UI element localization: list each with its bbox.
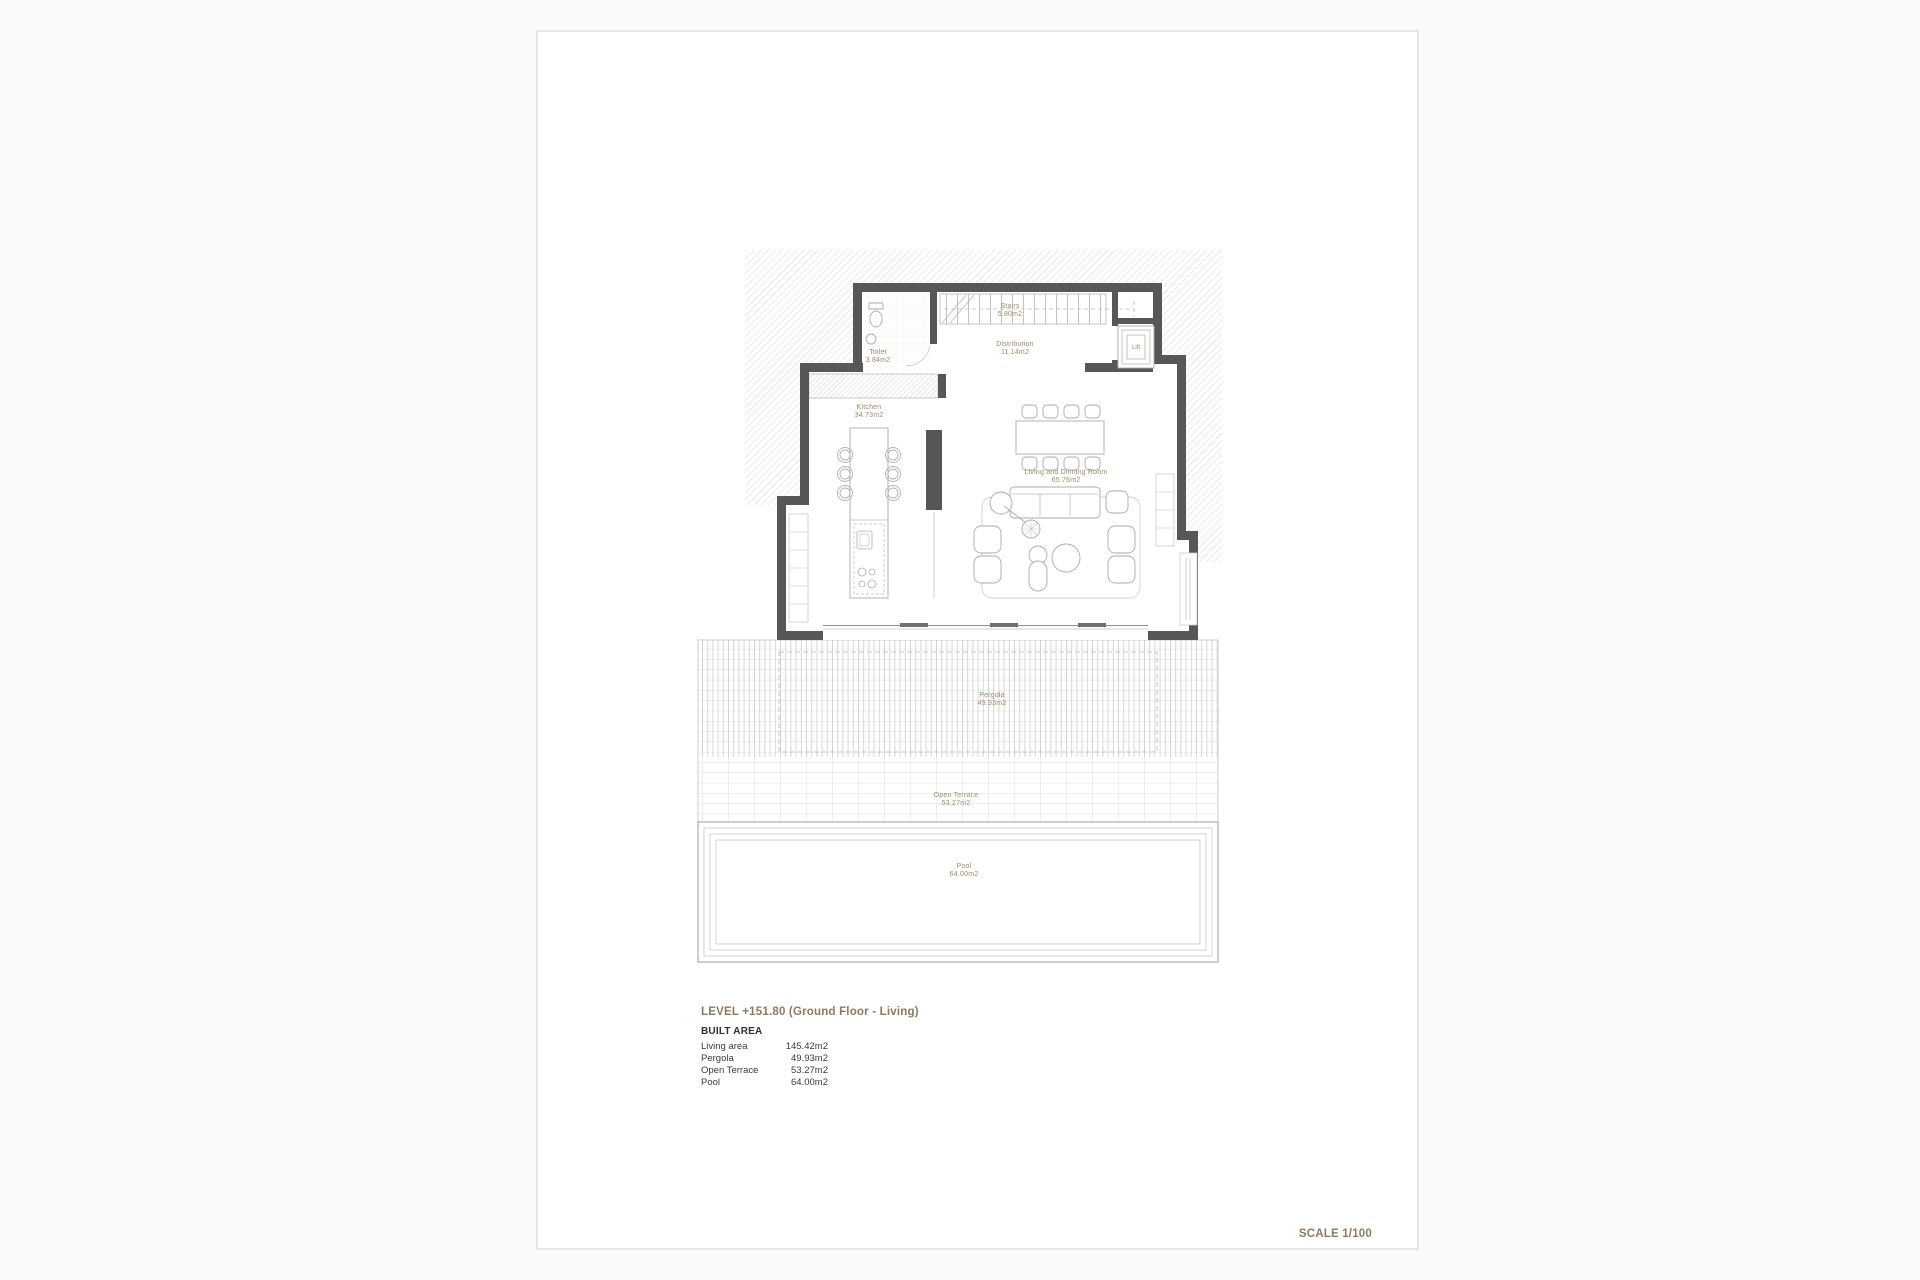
label-kitchen-area: 34.73m2 bbox=[855, 412, 884, 419]
wall-segment bbox=[1148, 631, 1198, 640]
wall-segment bbox=[1177, 355, 1186, 540]
label-toilet-name: Toilet bbox=[869, 349, 887, 356]
label-living-area: 65.76m2 bbox=[1052, 477, 1081, 484]
label-living-name: Living and Dinning Room bbox=[1025, 469, 1108, 476]
label-pool-name: Pool bbox=[957, 863, 972, 870]
built-area-row-label: Open Terrace bbox=[701, 1065, 758, 1076]
page-background: Toilet 3.84m2 Stairs 5.80m2 Distribution… bbox=[0, 0, 1920, 1280]
wall-segment bbox=[800, 363, 863, 372]
floor-lamp bbox=[990, 492, 1012, 514]
label-open-terrace-area: 53.27m2 bbox=[942, 800, 971, 807]
scale-label: SCALE 1/100 bbox=[1299, 1228, 1372, 1240]
wall-segment bbox=[930, 292, 937, 344]
floor-plan-drawing: Toilet 3.84m2 Stairs 5.80m2 Distribution… bbox=[0, 0, 1920, 1280]
partition-wall bbox=[926, 430, 942, 510]
window-niche-right-upper bbox=[1156, 474, 1174, 546]
built-area-row-value: 145.42m2 bbox=[786, 1041, 828, 1052]
wall-segment bbox=[800, 363, 809, 505]
label-stairs-name: Stairs bbox=[1000, 303, 1019, 310]
wall-segment bbox=[853, 283, 862, 363]
label-lift: Lift bbox=[1132, 345, 1140, 351]
label-pool-area: 64.00m2 bbox=[950, 871, 979, 878]
pergola-joists bbox=[698, 640, 1218, 757]
pool bbox=[698, 822, 1218, 962]
wall-segment bbox=[853, 283, 1162, 292]
built-area-row-value: 64.00m2 bbox=[791, 1077, 828, 1088]
wall-segment bbox=[938, 374, 946, 398]
label-toilet-area: 3.84m2 bbox=[866, 357, 891, 364]
built-area-row-value: 53.27m2 bbox=[791, 1065, 828, 1076]
label-open-terrace-name: Open Terrace bbox=[934, 792, 979, 799]
wall-segment bbox=[777, 496, 786, 640]
label-distribution-name: Distribution bbox=[996, 341, 1033, 348]
built-area-row-value: 49.93m2 bbox=[791, 1053, 828, 1064]
label-distribution-area: 11.14m2 bbox=[1001, 349, 1029, 356]
dining-table bbox=[1016, 421, 1104, 454]
label-stairs-area: 5.80m2 bbox=[998, 311, 1023, 318]
window-niche-left bbox=[789, 514, 808, 622]
wall-segment bbox=[777, 631, 823, 640]
label-pergola-area: 49.93m2 bbox=[978, 700, 1007, 707]
label-kitchen-name: Kitchen bbox=[857, 404, 882, 411]
built-area-heading: BUILT AREA bbox=[701, 1026, 762, 1037]
stairs bbox=[940, 294, 1134, 324]
built-area-row-label: Living area bbox=[701, 1041, 748, 1052]
kitchen-counter bbox=[809, 374, 938, 398]
wall-segment bbox=[1112, 318, 1153, 324]
sofa bbox=[1010, 487, 1100, 518]
round-side-table bbox=[1022, 520, 1040, 538]
window-niche-right-lower bbox=[1180, 553, 1197, 625]
side-table bbox=[1106, 491, 1128, 513]
kitchen-island bbox=[850, 428, 888, 598]
label-pergola-name: Pergola bbox=[979, 692, 1005, 699]
built-area-row-label: Pergola bbox=[701, 1053, 734, 1064]
built-area-row-label: Pool bbox=[701, 1077, 720, 1088]
drawing-title: LEVEL +151.80 (Ground Floor - Living) bbox=[701, 1006, 919, 1018]
